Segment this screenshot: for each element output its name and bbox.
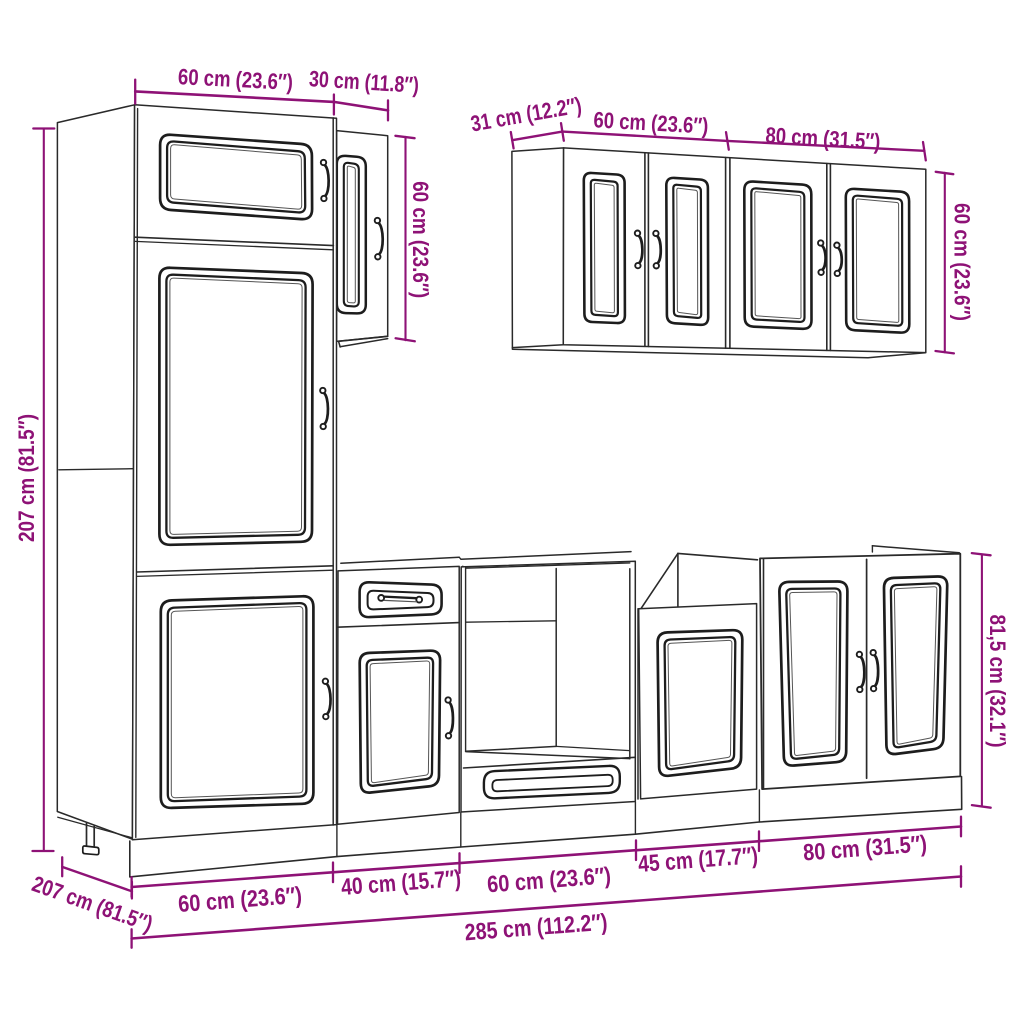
svg-text:60 cm (23.6″): 60 cm (23.6″) <box>950 203 975 321</box>
svg-text:81,5 cm (32.1″): 81,5 cm (32.1″) <box>985 615 1010 748</box>
svg-text:60 cm (23.6″): 60 cm (23.6″) <box>408 181 433 298</box>
svg-text:207 cm (81.5″): 207 cm (81.5″) <box>14 414 39 542</box>
